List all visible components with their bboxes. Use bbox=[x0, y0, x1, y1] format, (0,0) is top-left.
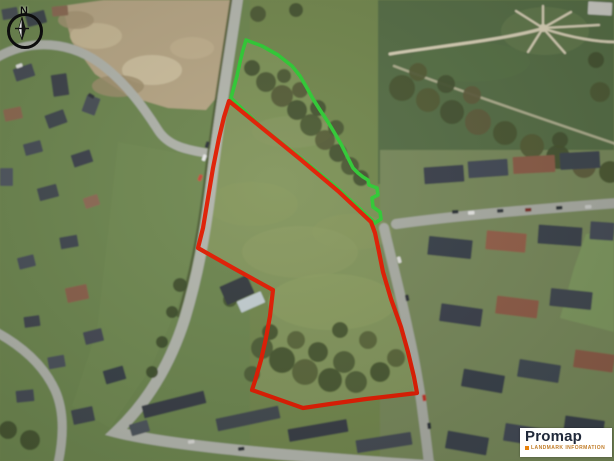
site-boundary-overlay bbox=[0, 0, 614, 461]
promap-logo: Promap LANDMARK INFORMATION bbox=[520, 428, 612, 457]
compass-rose-icon: N bbox=[4, 5, 44, 49]
compass-needle-icon bbox=[4, 5, 44, 49]
landmark-square-icon bbox=[525, 446, 529, 450]
extension-boundary-green bbox=[231, 40, 381, 223]
promap-wordmark: Promap bbox=[525, 429, 609, 445]
aerial-map: N Promap LANDMARK INFORMATION bbox=[0, 0, 614, 461]
landmark-tagline: LANDMARK INFORMATION bbox=[531, 445, 605, 451]
site-boundary-red bbox=[198, 101, 417, 408]
